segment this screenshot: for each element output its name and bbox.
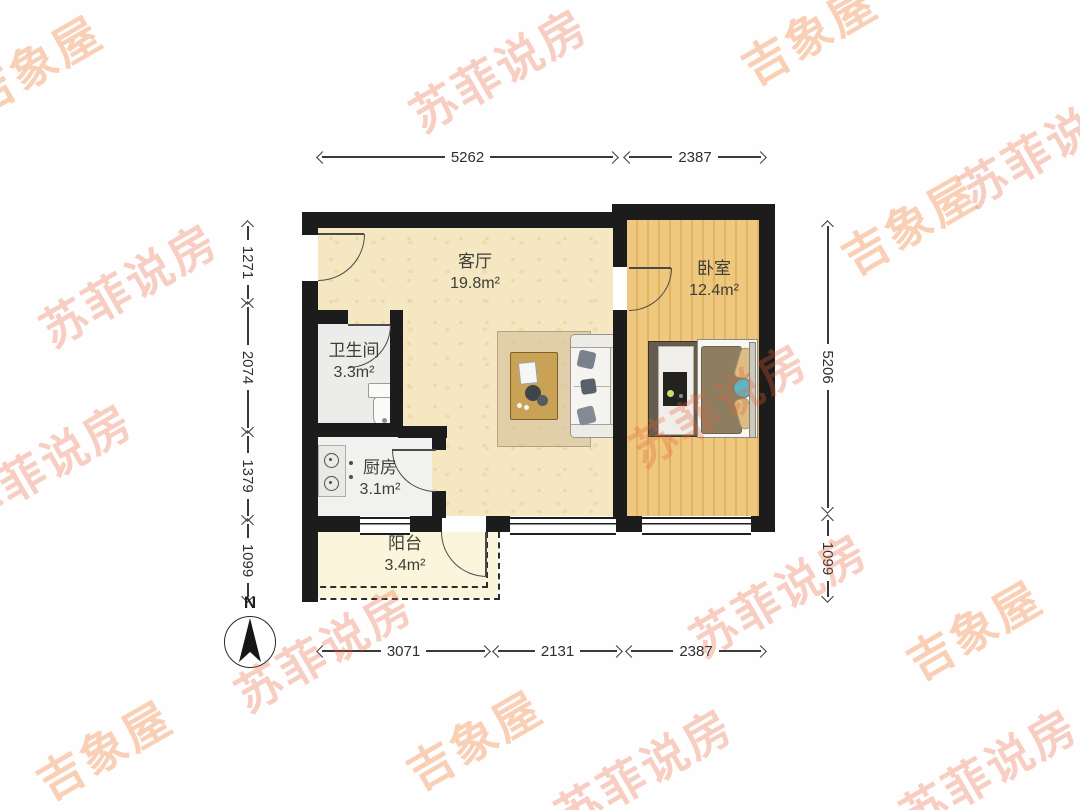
watermark-jixiangwu: 吉象屋 [393, 673, 553, 804]
wall-kitchen-top-ext [398, 426, 447, 438]
dim-arrow-right-icon [478, 645, 491, 658]
dim-bottom-1: 3071 [318, 640, 489, 662]
sofa-pillow-top [576, 349, 596, 369]
bedroom-window [642, 517, 751, 535]
dim-arrow-left-icon [242, 301, 255, 314]
living-room-area: 19.8m² [420, 273, 530, 295]
bedroom-label: 卧室 12.4m² [664, 258, 764, 302]
dim-arrow-left-icon [316, 645, 329, 658]
dim-top-1: 5262 [318, 146, 617, 168]
dim-line [322, 650, 381, 651]
dim-left-1: 1271 [237, 222, 259, 303]
wall-bathroom-right [390, 310, 403, 437]
watermark-sufei: 苏菲说房 [27, 205, 230, 360]
wall-top-bedroom [612, 204, 775, 220]
watermark-jixiangwu: 吉象屋 [893, 563, 1053, 694]
compass-ring [224, 616, 276, 668]
bedroom-area: 12.4m² [664, 280, 764, 302]
bathroom-name: 卫生间 [318, 340, 390, 362]
table-bowl [537, 395, 548, 406]
dim-arrow-right-icon [754, 151, 767, 164]
wall-top-living [302, 212, 620, 228]
dim-left-3: 1379 [237, 432, 259, 520]
living-room-label: 客厅 19.8m² [420, 251, 530, 295]
dim-value: 1099 [240, 538, 257, 583]
wall-left-upper [302, 212, 318, 235]
bathroom-label: 卫生间 3.3m² [318, 340, 390, 384]
tv-screen [663, 372, 687, 406]
dim-value: 5206 [820, 344, 837, 389]
dim-bottom-2: 2131 [494, 640, 621, 662]
bed [697, 339, 758, 438]
wall-kitchen-right-b [432, 491, 446, 518]
table-cup-a [517, 403, 522, 408]
dim-arrow-right-icon [822, 501, 835, 514]
dim-value: 2074 [240, 345, 257, 390]
watermark-jixiangwu: 吉象屋 [828, 158, 988, 289]
table-decor-card [518, 361, 538, 385]
watermark-sufei: 苏菲说房 [947, 65, 1080, 220]
dim-value: 2131 [535, 643, 580, 660]
bedroom-name: 卧室 [664, 258, 764, 280]
compass-north-label: N [222, 594, 278, 612]
dim-value: 3071 [381, 643, 426, 660]
dim-arrow-left-icon [822, 220, 835, 233]
dim-line [827, 226, 828, 344]
dim-arrow-left-icon [625, 645, 638, 658]
coffee-table [510, 352, 558, 420]
living-room-name: 客厅 [420, 251, 530, 273]
wall-bottom-kitchen-left [302, 516, 360, 532]
dim-value: 1379 [240, 453, 257, 498]
watermark-jixiangwu: 吉象屋 [23, 683, 183, 810]
dim-value: 5262 [445, 149, 490, 166]
dim-line [827, 390, 828, 508]
kitchen-area: 3.1m² [330, 479, 430, 501]
dim-arrow-right-icon [606, 151, 619, 164]
dim-arrow-right-icon [822, 590, 835, 603]
compass-needle-icon [225, 617, 275, 667]
wall-bathroom-top-left [302, 310, 348, 324]
balcony-label: 阳台 3.4m² [355, 533, 455, 577]
watermark-sufei: 苏菲说房 [397, 0, 600, 146]
dim-arrow-right-icon [610, 645, 623, 658]
dim-arrow-left-icon [242, 518, 255, 531]
dim-line [490, 156, 613, 157]
wall-bathroom-kitchen-divider [302, 423, 403, 437]
floor-plan: 客厅 19.8m² 卧室 12.4m² 卫生间 3.3m² 厨房 3.1m² 阳… [0, 0, 1080, 810]
wall-bottom-kitchen-right [410, 516, 442, 532]
wall-left-main [302, 281, 318, 602]
bed-headboard [749, 342, 756, 438]
dim-left-2: 2074 [237, 303, 259, 432]
kitchen-name: 厨房 [330, 457, 430, 479]
dim-right-2: 1099 [817, 516, 839, 601]
balcony-name: 阳台 [355, 533, 455, 555]
wall-bedroom-left-upper [613, 204, 627, 267]
sofa-pillow-middle [580, 378, 597, 395]
dim-value: 1099 [820, 536, 837, 581]
compass-icon: N [222, 594, 278, 680]
watermark-sufei: 苏菲说房 [887, 690, 1080, 810]
dim-value: 2387 [672, 149, 717, 166]
dim-arrow-right-icon [754, 645, 767, 658]
dim-line [426, 650, 485, 651]
kitchen-label: 厨房 3.1m² [330, 457, 430, 501]
dim-value: 2387 [673, 643, 718, 660]
dim-value: 1271 [240, 240, 257, 285]
living-room-window [510, 517, 616, 535]
wardrobe-tv-unit [648, 341, 701, 437]
sofa-pillow-bottom [576, 405, 597, 426]
balcony-area: 3.4m² [355, 555, 455, 577]
tv-indicator-dot [667, 390, 674, 397]
dim-arrow-left-icon [623, 151, 636, 164]
watermark-jixiangwu: 吉象屋 [728, 0, 888, 98]
bathroom-area: 3.3m² [318, 362, 390, 384]
wall-bedroom-right [759, 204, 775, 532]
dim-arrow-left-icon [492, 645, 505, 658]
watermark-sufei: 苏菲说房 [542, 690, 745, 810]
wall-bedroom-left-lower [613, 310, 627, 532]
dim-left-4: 1099 [237, 520, 259, 601]
dim-right-1: 5206 [817, 222, 839, 512]
tv-small-dot [679, 394, 683, 398]
table-cup-b [524, 405, 529, 410]
dim-arrow-left-icon [242, 430, 255, 443]
dim-line [322, 156, 445, 157]
dim-top-2: 2387 [625, 146, 765, 168]
dim-arrow-left-icon [822, 514, 835, 527]
watermark-jixiangwu: 吉象屋 [0, 0, 114, 128]
dim-bottom-3: 2387 [627, 640, 765, 662]
wall-post-balcony [486, 516, 510, 532]
dim-arrow-left-icon [242, 220, 255, 233]
watermark-sufei: 苏菲说房 [0, 385, 144, 540]
dim-arrow-left-icon [316, 151, 329, 164]
